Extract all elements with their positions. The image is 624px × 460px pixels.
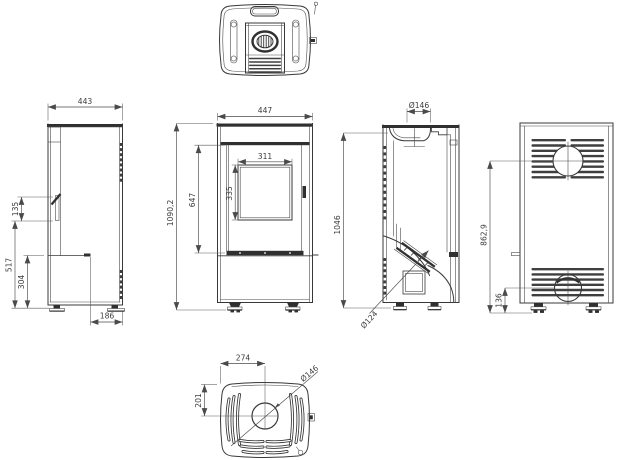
rear-vent-edge-top [384,146,387,219]
drain-plug [298,450,303,455]
dim-handle-bottom: 517 [5,258,14,273]
side-knob-cap [311,39,315,42]
right-side-view: Ø146 1046 Ø124 [333,101,460,330]
leader-arrow [275,403,280,407]
handle-slot-inner [253,9,277,15]
dim-base-height: 304 [17,275,26,290]
collar-ribs [259,35,271,47]
feet [531,303,601,313]
dim-flue-pipe-diameter: Ø124 [359,309,380,330]
left-view-dimensions: 443 135 517 304 186 [5,97,123,326]
dim-door-height: 647 [188,193,197,208]
left-side-view: 443 135 517 304 186 [5,97,125,326]
side-brackets [231,20,300,63]
rear-view: 862,9 136 [480,123,614,313]
top-cap [47,124,123,127]
dim-depth: 443 [78,97,93,106]
feet [228,303,301,313]
feet [50,305,125,311]
dim-glass-width: 311 [258,152,273,161]
top-steps [432,128,448,135]
dim-bottom-vent-height: 136 [495,293,504,308]
rear-connection-mark [84,254,91,257]
bottom-slats [240,441,290,453]
dim-flue-diameter: Ø146 [299,363,321,383]
door-top-band [221,142,310,145]
dim-glass-height: 335 [225,186,234,201]
door-handle [303,186,307,198]
sensor-antenna [315,5,316,14]
top-cap [382,125,460,128]
door-glass-inner [240,167,290,218]
dim-handle-height: 135 [11,202,20,217]
dim-rear-offset: 186 [100,312,115,321]
front-view-dimensions: 447 1090,2 647 311 335 [166,106,313,310]
dim-flue-collar-diameter: Ø146 [409,101,430,110]
top-cap [217,124,314,127]
side-tab [512,253,521,256]
top-view [220,2,318,75]
feet [394,303,442,310]
latch-block [449,252,458,257]
dim-body-height: 1046 [333,215,342,234]
flue-collar-profile [390,129,431,147]
door-glass [238,165,292,220]
stove-technical-drawing: 443 135 517 304 186 [0,0,624,460]
dim-total-height: 1090,2 [166,200,175,227]
front-view: 447 1090,2 647 311 335 [166,106,318,312]
flue-collar-oval [253,32,278,52]
front-top-corner [48,127,61,142]
top-rear-slats [249,58,281,73]
dim-flue-center-height: 862,9 [480,224,489,246]
dim-flue-offset-x: 274 [236,354,251,363]
rear-vent-edge-bottom [384,258,387,295]
right-view-dimensions: Ø146 1046 Ø124 [333,101,431,330]
dim-flue-offset-y: 201 [194,393,203,408]
side-knob-cap [310,415,313,419]
dim-width: 447 [258,106,273,115]
bottom-view: 274 201 Ø146 [194,354,320,458]
